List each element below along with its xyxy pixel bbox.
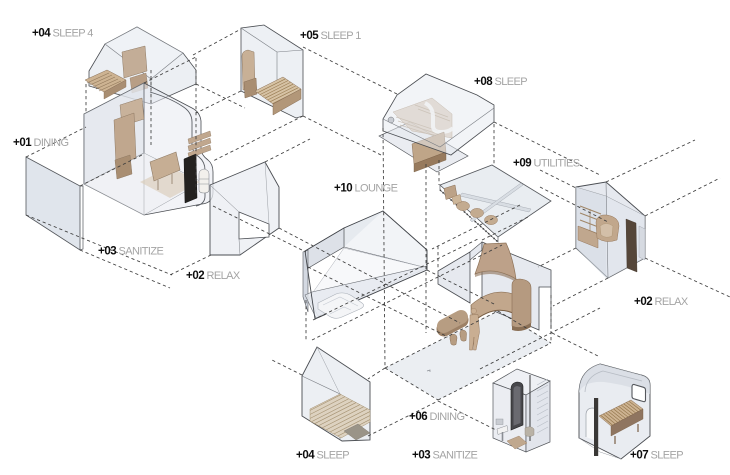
svg-text:+03: +03 — [98, 246, 116, 258]
svg-text:+05: +05 — [300, 30, 319, 42]
svg-text:SANITIZE: SANITIZE — [433, 450, 478, 462]
svg-text:SANITIZE: SANITIZE — [119, 246, 164, 258]
svg-text:+03: +03 — [412, 450, 430, 462]
svg-text:+10: +10 — [334, 183, 352, 195]
svg-text:SLEEP 4: SLEEP 4 — [53, 28, 94, 40]
svg-text:+06: +06 — [409, 411, 427, 423]
svg-text:+08: +08 — [474, 76, 493, 88]
svg-text:UTILITIES: UTILITIES — [534, 158, 580, 170]
svg-text:SLEEP: SLEEP — [651, 450, 684, 462]
svg-text:+04: +04 — [32, 28, 51, 40]
svg-text:RELAX: RELAX — [655, 296, 689, 308]
svg-text:DINING: DINING — [34, 137, 69, 149]
svg-text:+01: +01 — [13, 137, 32, 149]
svg-text:SLEEP 1: SLEEP 1 — [321, 30, 362, 42]
svg-text:+02: +02 — [634, 296, 652, 308]
svg-text:DINING: DINING — [430, 411, 465, 423]
svg-text:+07: +07 — [630, 450, 648, 462]
svg-text:RELAX: RELAX — [207, 270, 241, 282]
svg-text:+04: +04 — [296, 450, 315, 462]
svg-text:SLEEP: SLEEP — [317, 450, 350, 462]
svg-text:SLEEP: SLEEP — [495, 76, 528, 88]
svg-text:LOUNGE: LOUNGE — [355, 183, 398, 195]
svg-text:+02: +02 — [186, 270, 204, 282]
svg-text:+09: +09 — [513, 158, 531, 170]
